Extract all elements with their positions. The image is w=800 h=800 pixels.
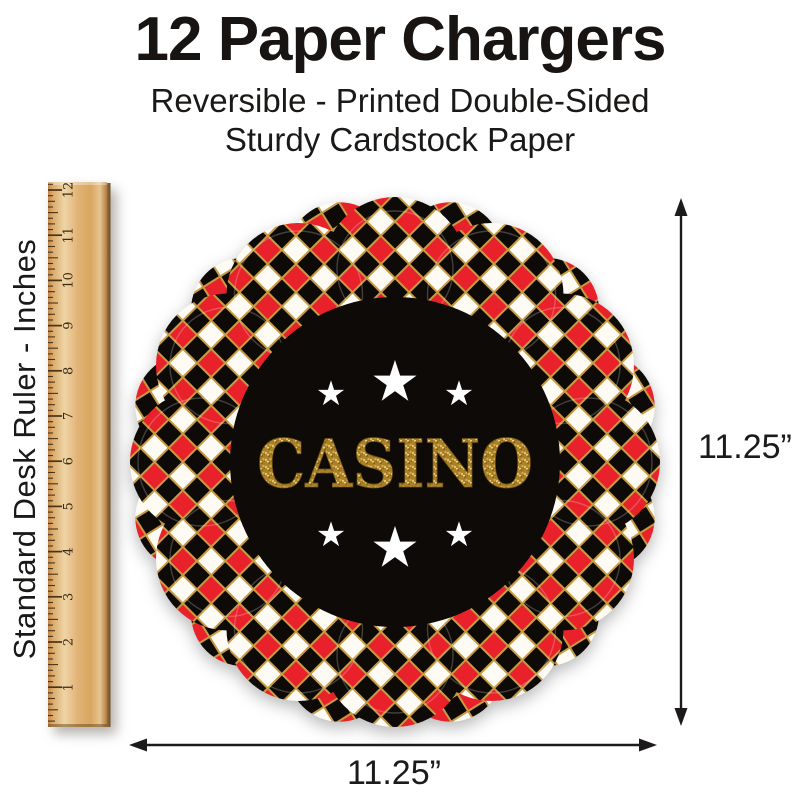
ruler-inch-number: 11 xyxy=(62,227,77,244)
height-dimension-label: 11.25” xyxy=(698,428,792,467)
arrowhead-up-icon xyxy=(675,198,688,216)
casino-wordmark: CASINO xyxy=(257,425,533,503)
subtitle-line-1: Reversible - Printed Double-Sided xyxy=(0,82,800,120)
casino-charger-plate: ★ ★ ★ ★ ★ ★ CASINO xyxy=(125,192,665,732)
arrowhead-left-icon xyxy=(129,739,147,752)
ruler-inch-number: 4 xyxy=(62,547,77,555)
star-icon: ★ xyxy=(444,374,474,414)
ruler-inch-number: 10 xyxy=(62,272,77,289)
ruler-inch-number: 1 xyxy=(62,683,77,691)
arrowhead-right-icon xyxy=(639,739,657,752)
ruler-inch-number: 9 xyxy=(62,321,77,329)
ruler-inch-number: 6 xyxy=(62,457,77,465)
star-icon: ★ xyxy=(316,515,346,555)
star-icon: ★ xyxy=(370,516,420,581)
star-icon: ★ xyxy=(370,350,420,415)
ruler-inch-number: 7 xyxy=(62,412,77,420)
ruler-inch-number: 5 xyxy=(62,502,77,510)
ruler-side-edge xyxy=(107,183,111,727)
ruler-inch-number: 12 xyxy=(62,182,77,199)
ruler-inch-number: 3 xyxy=(62,593,77,601)
height-dimension-arrow xyxy=(668,196,694,728)
star-icon: ★ xyxy=(444,515,474,555)
product-infographic: 12 Paper Chargers Reversible - Printed D… xyxy=(0,0,800,800)
ruler-inch-number: 8 xyxy=(62,367,77,375)
arrowhead-down-icon xyxy=(675,708,688,726)
ruler-caption: Standard Desk Ruler - Inches xyxy=(7,239,43,660)
subtitle-line-2: Sturdy Cardstock Paper xyxy=(0,121,800,159)
star-icon: ★ xyxy=(316,374,346,414)
ruler-body xyxy=(48,182,107,727)
wooden-ruler: 121110987654321 xyxy=(46,181,112,729)
width-dimension-label: 11.25” xyxy=(260,754,528,793)
page-title: 12 Paper Chargers xyxy=(0,8,800,72)
ruler-inch-number: 2 xyxy=(62,638,77,646)
